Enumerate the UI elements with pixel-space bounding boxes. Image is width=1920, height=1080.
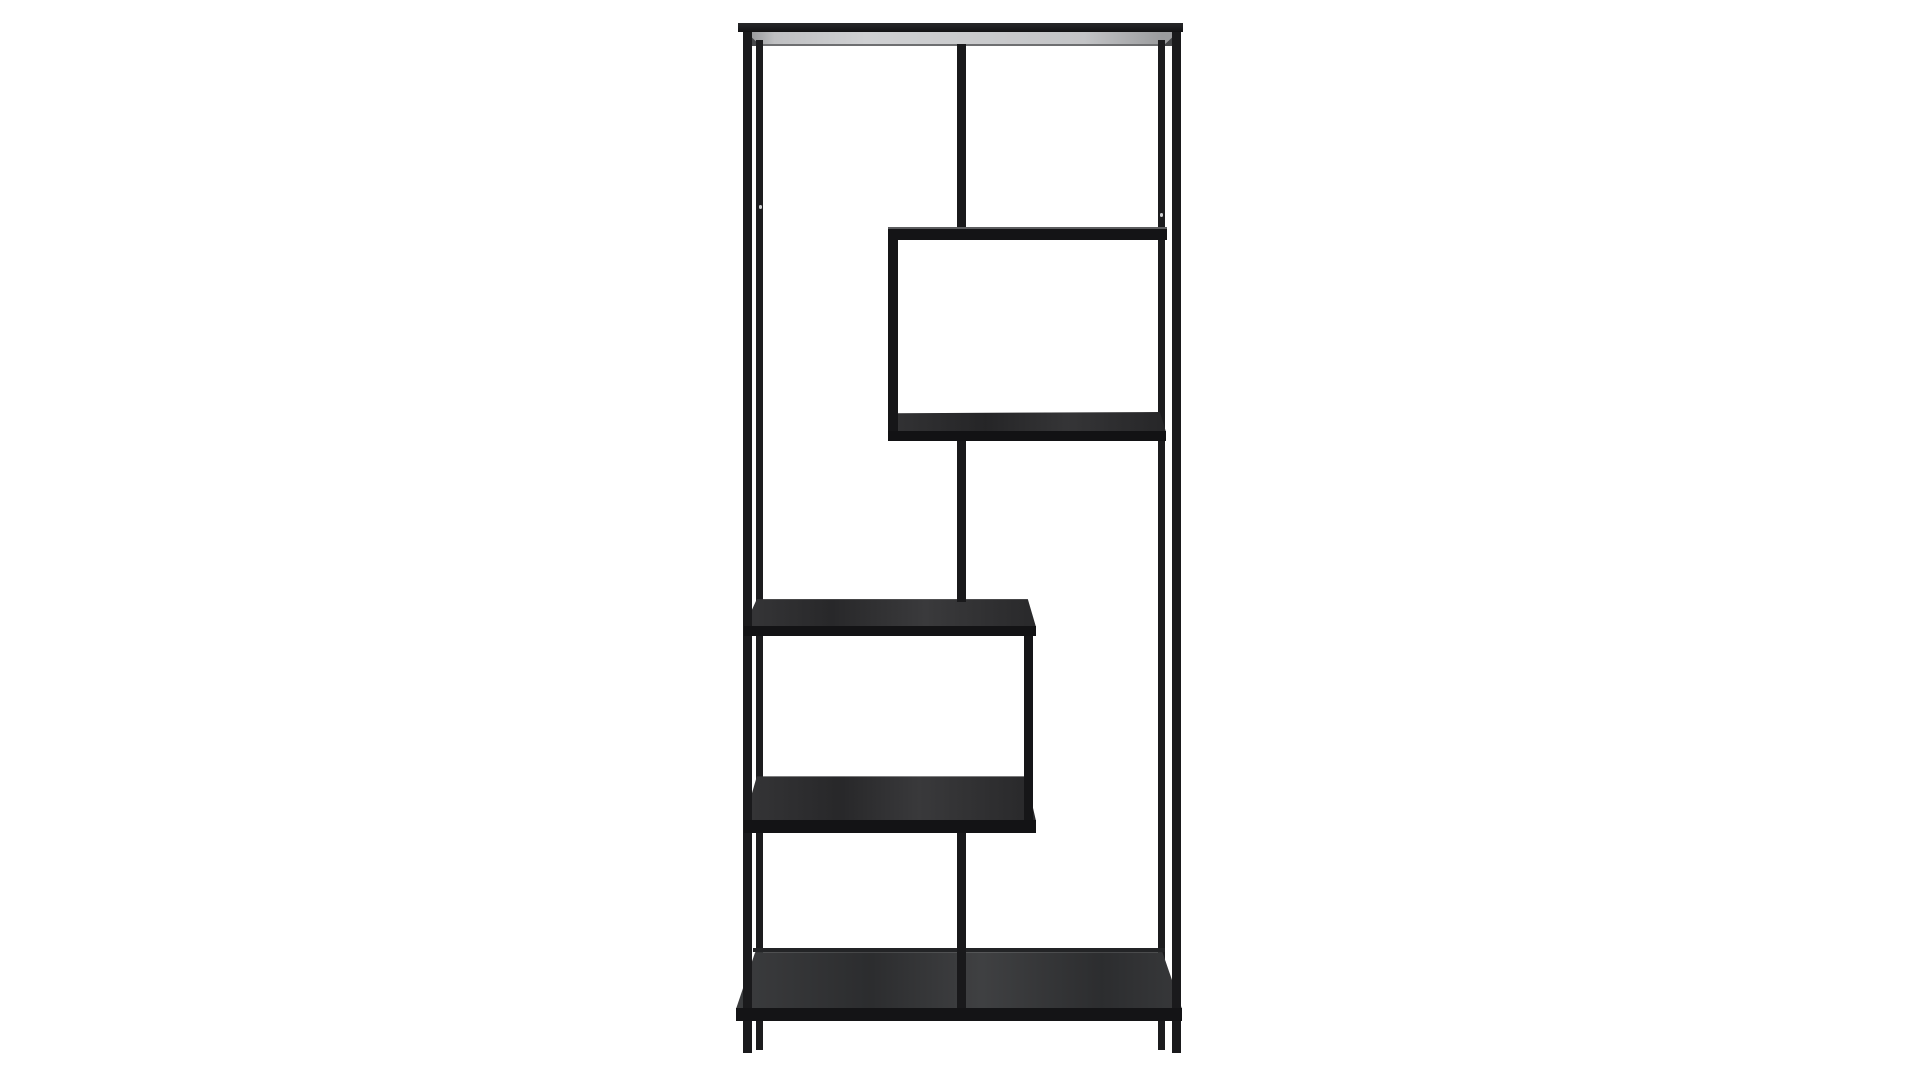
front-left-post	[743, 23, 752, 1053]
box-left-edge-bar	[888, 230, 898, 434]
front-right-post	[1172, 23, 1181, 1053]
back-right-post	[1158, 40, 1165, 1050]
step-right-vertical-bar	[1024, 630, 1033, 828]
lower-left-shelf-surface	[744, 775, 1036, 821]
lower-left-shelf-front-bar	[744, 820, 1036, 833]
back-left-post	[756, 40, 763, 1050]
top-shelf-front-bar	[738, 23, 1183, 32]
middle-left-shelf-front-bar	[744, 626, 1036, 636]
center-divider-middle	[957, 438, 966, 602]
center-divider-lower	[957, 828, 966, 1014]
screw-hole-dot-left	[759, 205, 762, 209]
screw-hole-dot-right	[1160, 213, 1163, 217]
box-bottom-shelf-front-bar	[888, 431, 1166, 441]
middle-left-shelf-surface	[744, 598, 1036, 627]
box-bottom-shelf-surface	[888, 412, 1166, 432]
bottom-shelf-front-bar	[736, 1008, 1182, 1021]
bookcase-product-photo	[0, 0, 1920, 1080]
upper-right-shelf-bar	[888, 227, 1167, 240]
center-divider-upper	[957, 44, 966, 230]
